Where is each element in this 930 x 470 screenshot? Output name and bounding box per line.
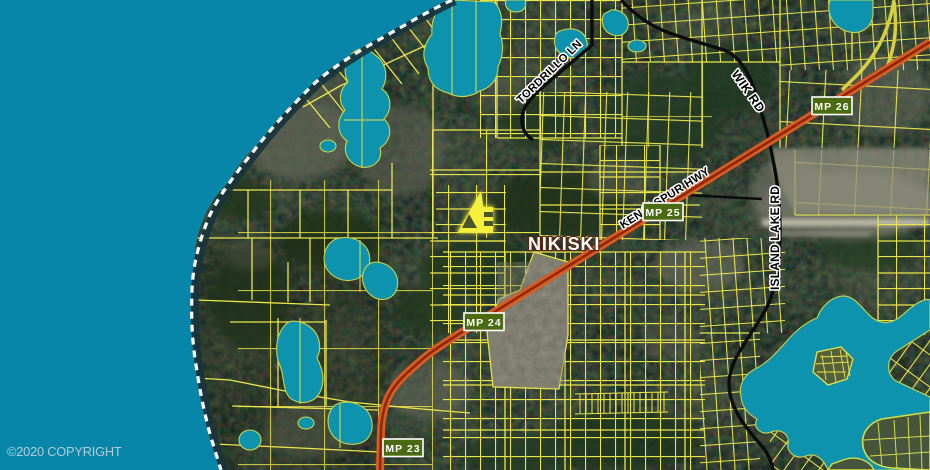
svg-text:MP 24: MP 24 — [466, 317, 501, 329]
svg-text:MP 23: MP 23 — [385, 443, 420, 455]
svg-text:NIKISKI: NIKISKI — [528, 234, 600, 254]
svg-text:ISLAND LAKE RD: ISLAND LAKE RD — [768, 186, 782, 290]
svg-text:MP 26: MP 26 — [814, 101, 849, 113]
svg-text:MP 25: MP 25 — [645, 207, 680, 219]
svg-text:©2020 COPYRIGHT: ©2020 COPYRIGHT — [7, 444, 122, 459]
